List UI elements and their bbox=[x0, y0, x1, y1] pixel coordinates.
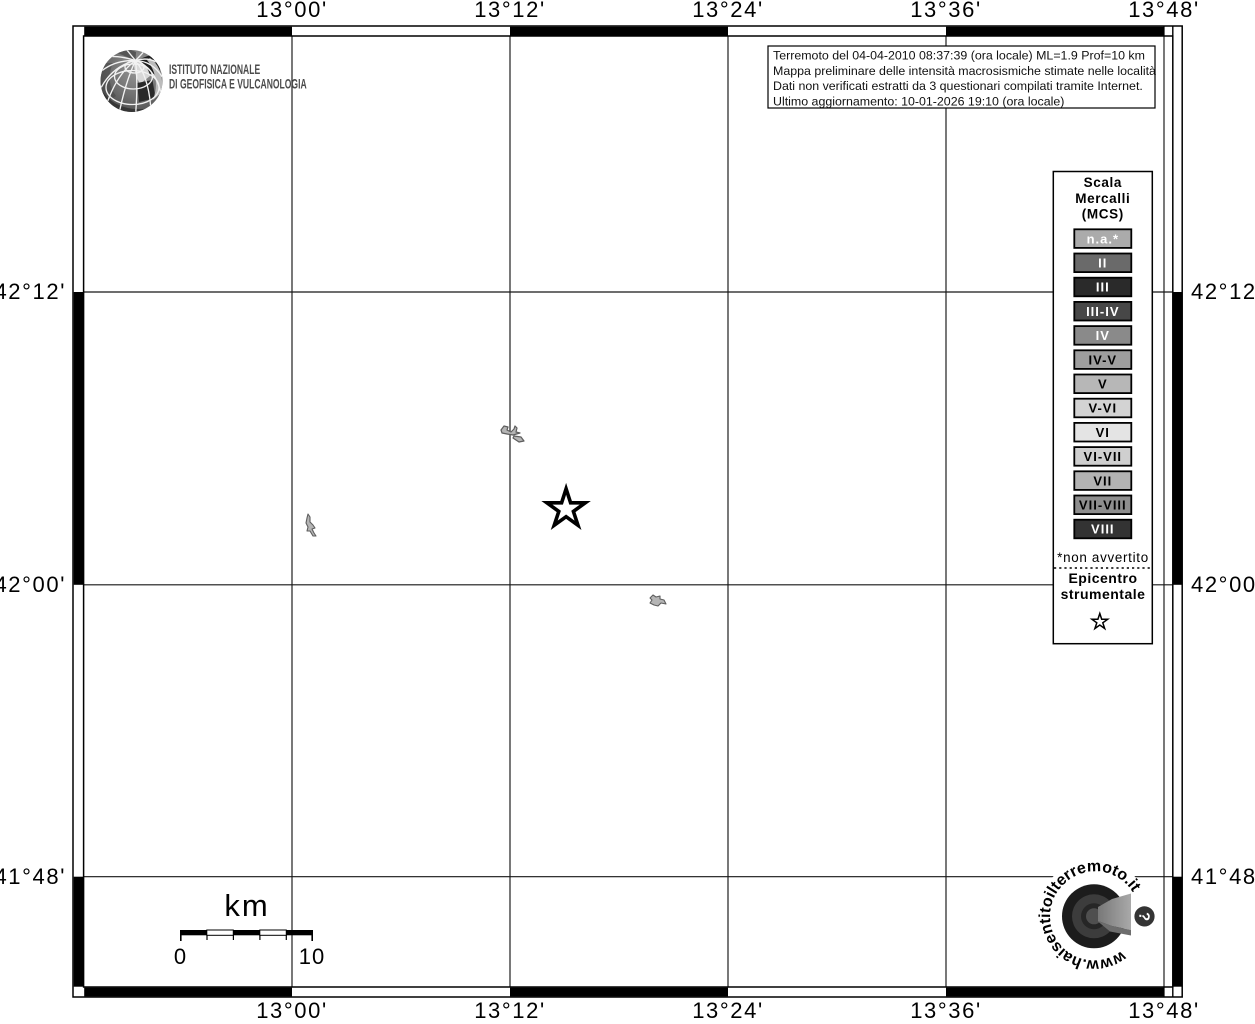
svg-text:III: III bbox=[1096, 280, 1110, 295]
svg-text:42°12': 42°12' bbox=[1191, 279, 1255, 304]
svg-text:DI GEOFISICA E VULCANOLOGIA: DI GEOFISICA E VULCANOLOGIA bbox=[169, 78, 307, 92]
svg-text:42°00': 42°00' bbox=[0, 572, 66, 597]
svg-text:13°00': 13°00' bbox=[256, 0, 328, 22]
svg-text:IV-V: IV-V bbox=[1089, 352, 1118, 367]
svg-text:Dati non verificati estratti d: Dati non verificati estratti da 3 questi… bbox=[773, 79, 1143, 93]
svg-text:13°00': 13°00' bbox=[256, 998, 328, 1023]
svg-text:VII: VII bbox=[1093, 473, 1112, 488]
svg-text:Mappa preliminare delle intens: Mappa preliminare delle intensità macros… bbox=[773, 64, 1156, 78]
svg-text:II: II bbox=[1098, 256, 1107, 271]
svg-text:V: V bbox=[1098, 377, 1108, 392]
svg-text:13°48': 13°48' bbox=[1128, 998, 1200, 1023]
svg-text:*non avvertito: *non avvertito bbox=[1057, 550, 1149, 565]
svg-text:41°48': 41°48' bbox=[0, 864, 66, 889]
svg-text:13°12': 13°12' bbox=[474, 998, 546, 1023]
svg-text:10: 10 bbox=[299, 944, 325, 969]
svg-text:Terremoto del 04-04-2010 08:37: Terremoto del 04-04-2010 08:37:39 (ora l… bbox=[773, 49, 1145, 63]
svg-text:13°24': 13°24' bbox=[692, 998, 764, 1023]
svg-text:ISTITUTO NAZIONALE: ISTITUTO NAZIONALE bbox=[169, 63, 260, 77]
svg-text:VII-VIII: VII-VIII bbox=[1079, 498, 1127, 513]
svg-text:0: 0 bbox=[174, 944, 186, 969]
svg-text:41°48': 41°48' bbox=[1191, 864, 1255, 889]
svg-text:VI: VI bbox=[1096, 425, 1110, 440]
svg-text:V-VI: V-VI bbox=[1089, 401, 1118, 416]
svg-text:13°36': 13°36' bbox=[910, 0, 982, 22]
svg-text:13°12': 13°12' bbox=[474, 0, 546, 22]
svg-text:Scala: Scala bbox=[1084, 175, 1122, 190]
svg-text:?: ? bbox=[1135, 911, 1153, 921]
svg-text:13°48': 13°48' bbox=[1128, 0, 1200, 22]
svg-text:Ultimo aggiornamento: 10-01-20: Ultimo aggiornamento: 10-01-2026 19:10 (… bbox=[773, 94, 1064, 108]
svg-text:strumentale: strumentale bbox=[1061, 586, 1146, 602]
svg-text:n.a.*: n.a.* bbox=[1087, 231, 1119, 246]
svg-text:VIII: VIII bbox=[1091, 522, 1115, 537]
svg-text:km: km bbox=[224, 888, 269, 923]
svg-text:13°36': 13°36' bbox=[910, 998, 982, 1023]
svg-text:42°12': 42°12' bbox=[0, 279, 66, 304]
svg-text:42°00': 42°00' bbox=[1191, 572, 1255, 597]
svg-text:Epicentro: Epicentro bbox=[1068, 570, 1137, 586]
svg-text:(MCS): (MCS) bbox=[1082, 207, 1124, 222]
svg-text:13°24': 13°24' bbox=[692, 0, 764, 22]
svg-text:Mercalli: Mercalli bbox=[1075, 191, 1130, 206]
svg-text:IV: IV bbox=[1096, 328, 1110, 343]
svg-text:VI-VII: VI-VII bbox=[1084, 449, 1123, 464]
svg-text:III-IV: III-IV bbox=[1086, 304, 1119, 319]
